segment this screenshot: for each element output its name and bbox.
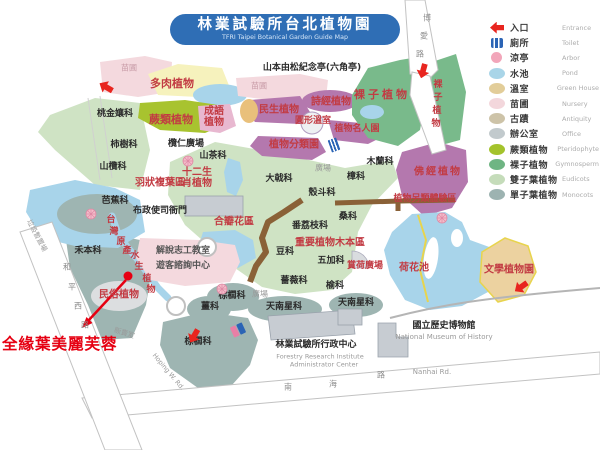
legend-item: 入口 Entrance xyxy=(489,22,599,33)
region-idiom-plants xyxy=(198,104,236,133)
annotation-text: 全緣葉美麗芙蓉 xyxy=(2,332,118,354)
legend-label-en: Gymnosperm xyxy=(555,160,599,168)
legend-label-en: Monocots xyxy=(562,191,593,199)
botanical-garden-map: 林業試驗所台北植物園 TFRI Taipei Botanical Garden … xyxy=(0,0,600,450)
legend-swatch-icon xyxy=(489,159,505,170)
legend-label-en: Toilet xyxy=(562,39,579,47)
region-greenhouse-small xyxy=(240,99,258,123)
arbor-icon xyxy=(216,280,228,292)
legend-swatch-icon xyxy=(490,22,504,34)
legend-item: 涼亭 Arbor xyxy=(489,52,599,63)
legend-label-en: Pond xyxy=(562,69,578,77)
legend-label-zh: 水池 xyxy=(510,67,562,80)
legend-item: 溫室 Green House xyxy=(489,83,599,94)
legend-label-zh: 涼亭 xyxy=(510,51,562,64)
legend-swatch-icon xyxy=(489,189,505,200)
roundabout-2 xyxy=(167,297,185,315)
legend-label-zh: 蕨類植物 xyxy=(510,143,557,156)
legend-swatch-icon xyxy=(491,38,503,48)
legend: 入口 Entrance 廁所 Toilet 涼亭 Arbor 水池 Pond xyxy=(489,22,599,204)
region-musaceae-island xyxy=(57,194,137,234)
building-museum-annex xyxy=(338,309,362,325)
map-title-banner: 林業試驗所台北植物園 TFRI Taipei Botanical Garden … xyxy=(170,14,400,45)
legend-item: 蕨類植物 Pteridophyte xyxy=(489,144,599,155)
region-shijing-plants xyxy=(302,90,358,112)
legend-swatch-icon xyxy=(489,144,505,155)
legend-label-en: Antiquity xyxy=(562,115,591,123)
legend-item: 裸子植物 Gymnosperm xyxy=(489,159,599,170)
building-museum xyxy=(378,323,408,357)
legend-label-en: Nursery xyxy=(562,100,588,108)
legend-swatch-icon xyxy=(489,68,505,79)
legend-label-zh: 單子葉植物 xyxy=(510,188,562,201)
arbor-icon xyxy=(85,205,97,217)
legend-item: 單子葉植物 Monocots xyxy=(489,189,599,200)
legend-label-en: Pteridophyte xyxy=(557,145,599,153)
road-nanhai xyxy=(82,352,600,418)
map-title: 林業試驗所台北植物園 xyxy=(198,18,373,34)
legend-label-zh: 裸子植物 xyxy=(510,158,555,171)
building-yamen xyxy=(185,196,243,216)
legend-swatch-icon xyxy=(489,128,505,139)
legend-swatch-icon xyxy=(489,113,505,124)
legend-swatch-icon xyxy=(491,52,502,63)
arbor-icon xyxy=(436,209,448,221)
lotus-viewing-deck xyxy=(352,251,369,268)
legend-label-zh: 溫室 xyxy=(510,82,557,95)
region-literature-garden xyxy=(480,238,536,302)
roundabout-1 xyxy=(198,238,216,256)
legend-item: 辦公室 Office xyxy=(489,128,599,139)
legend-label-en: Entrance xyxy=(562,24,591,32)
legend-swatch-icon xyxy=(489,83,505,94)
region-arecaceae-2 xyxy=(160,312,258,388)
legend-label-zh: 雙子葉植物 xyxy=(510,173,562,186)
region-gym-pond xyxy=(360,105,384,119)
legend-item: 廁所 Toilet xyxy=(489,37,599,48)
region-folk-plants xyxy=(91,281,147,311)
legend-label-en: Office xyxy=(562,130,581,138)
region-northwest-families xyxy=(38,98,150,190)
map-subtitle: TFRI Taipei Botanical Garden Guide Map xyxy=(222,34,348,42)
legend-swatch-icon xyxy=(489,98,505,109)
legend-swatch-icon xyxy=(489,174,505,185)
legend-label-en: Arbor xyxy=(562,54,580,62)
legend-item: 水池 Pond xyxy=(489,68,599,79)
legend-label-zh: 苗圃 xyxy=(510,97,562,110)
region-visitor-center xyxy=(136,238,240,286)
trail-embankment xyxy=(335,200,455,203)
annotation-dot xyxy=(124,272,133,281)
legend-item: 苗圃 Nursery xyxy=(489,98,599,109)
lotus-pond-island-2 xyxy=(451,229,463,247)
legend-item: 雙子葉植物 Eudicots xyxy=(489,174,599,185)
circular-greenhouse xyxy=(301,112,323,134)
arbor-icon xyxy=(182,152,194,164)
legend-label-en: Green House xyxy=(557,84,599,92)
legend-label-zh: 廁所 xyxy=(510,36,562,49)
legend-item: 古蹟 Antiquity xyxy=(489,113,599,124)
legend-label-en: Eudicots xyxy=(562,175,590,183)
legend-label-zh: 古蹟 xyxy=(510,112,562,125)
legend-label-zh: 入口 xyxy=(510,21,562,34)
legend-label-zh: 辦公室 xyxy=(510,127,562,140)
